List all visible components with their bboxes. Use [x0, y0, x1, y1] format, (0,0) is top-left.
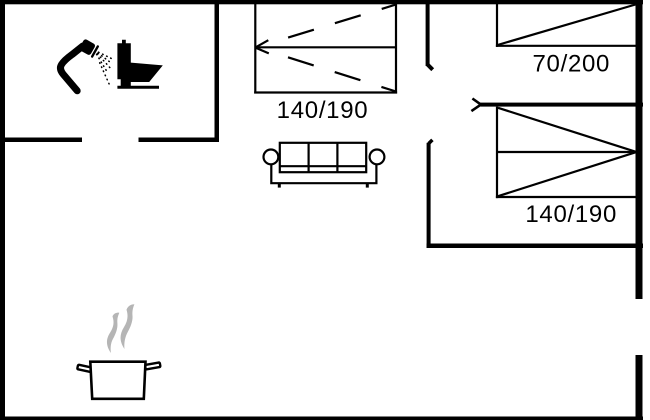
svg-text:140/190: 140/190 [277, 97, 369, 124]
svg-text:70/200: 70/200 [532, 51, 610, 78]
svg-text:140/190: 140/190 [525, 201, 617, 228]
